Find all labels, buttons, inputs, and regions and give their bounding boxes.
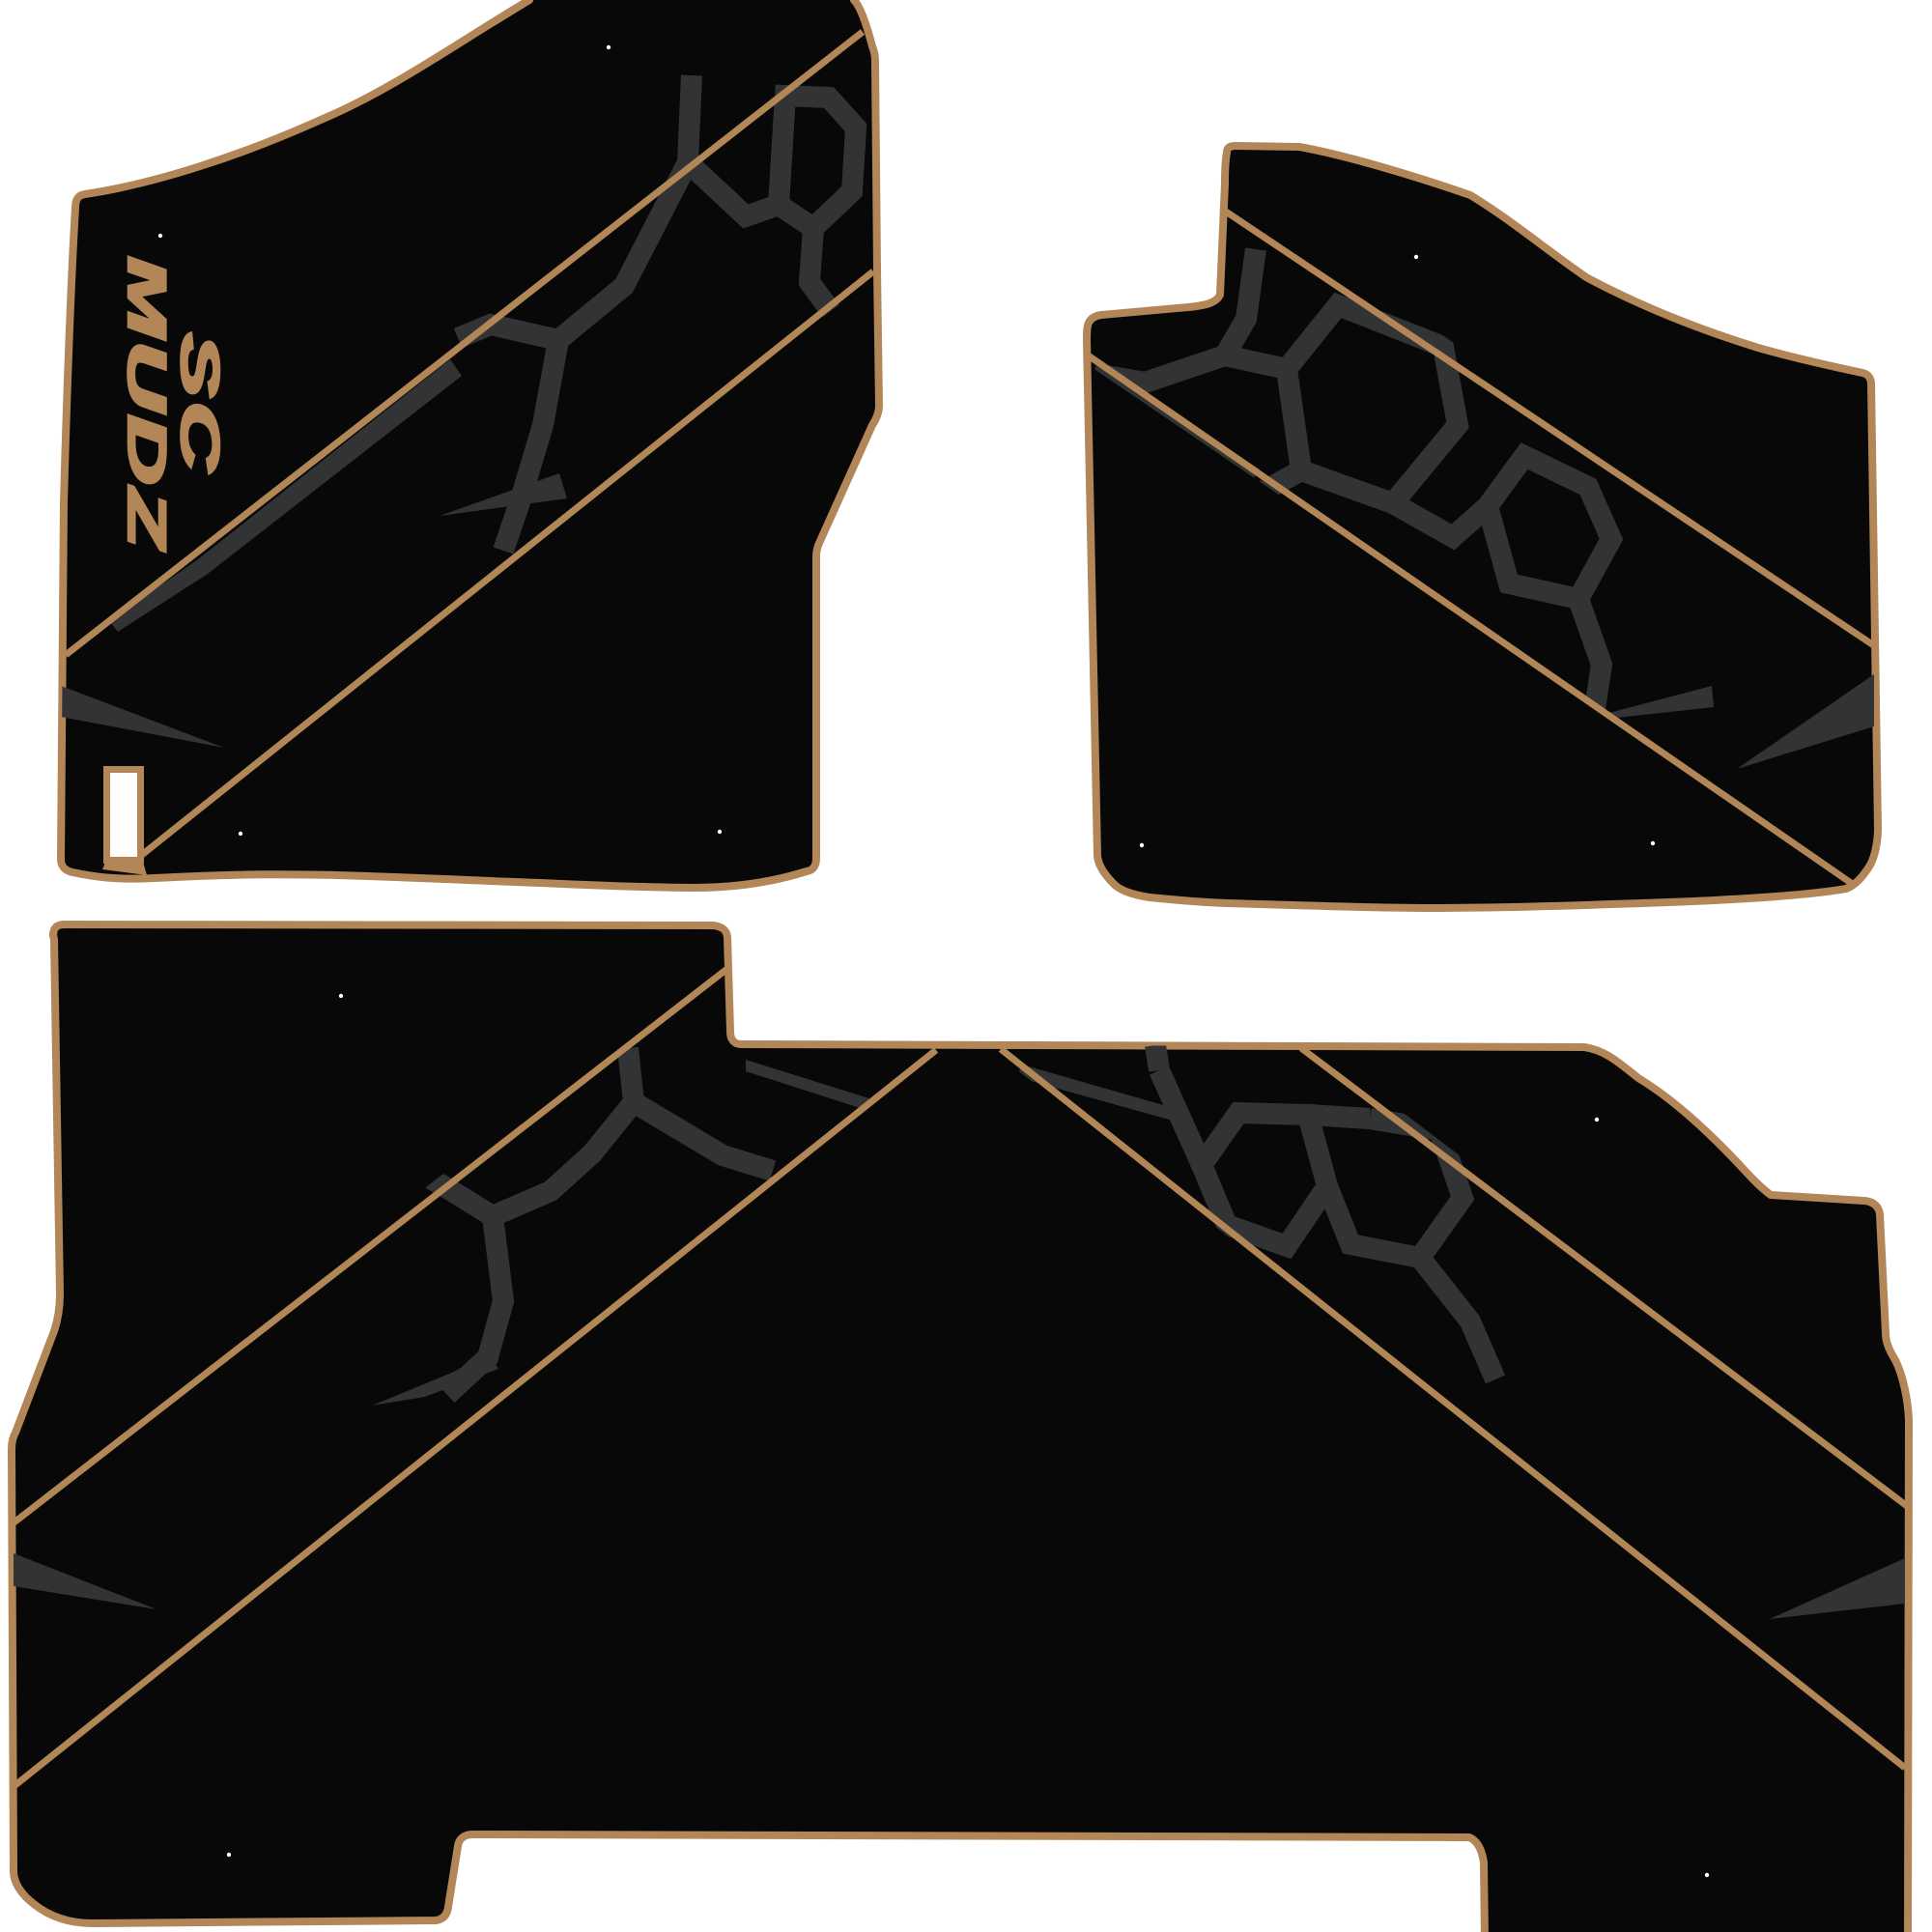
svg-text:MUDZ: MUDZ: [117, 256, 177, 552]
svg-text:SC: SC: [170, 332, 230, 474]
